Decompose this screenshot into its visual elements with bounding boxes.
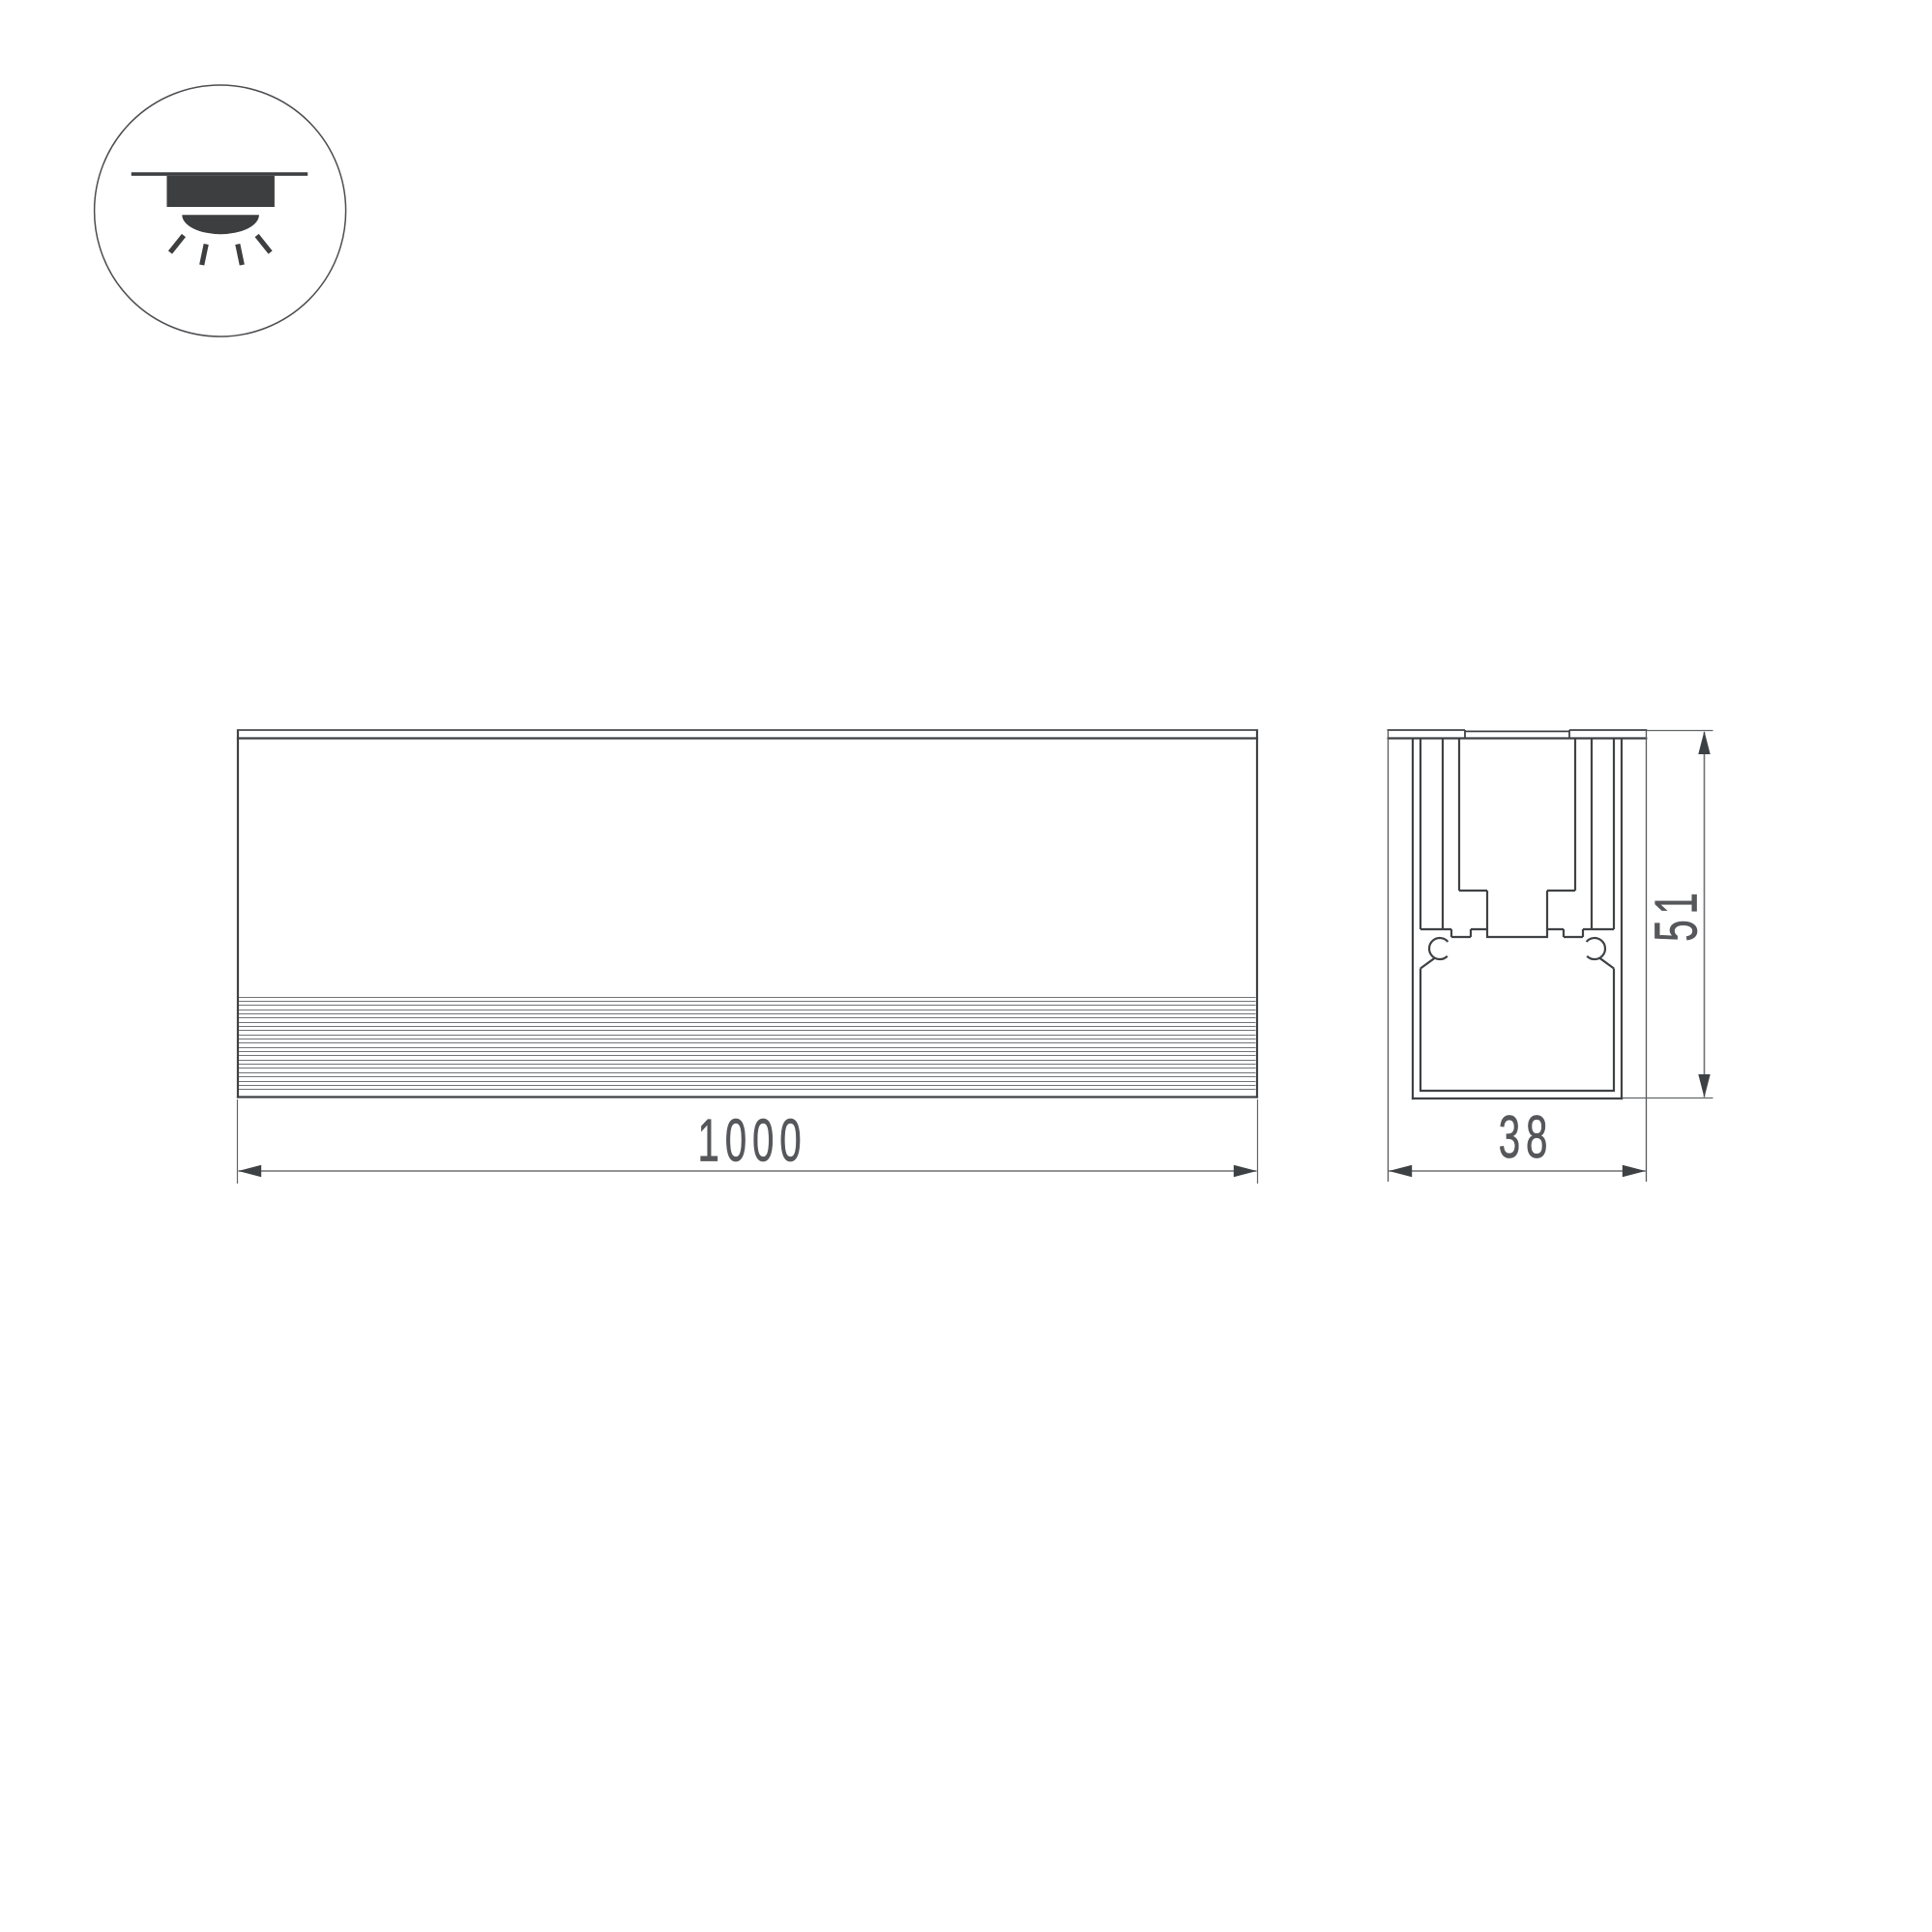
svg-text:1000: 1000 — [697, 1108, 806, 1175]
svg-text:38: 38 — [1499, 1104, 1554, 1171]
svg-text:51: 51 — [1644, 887, 1711, 942]
